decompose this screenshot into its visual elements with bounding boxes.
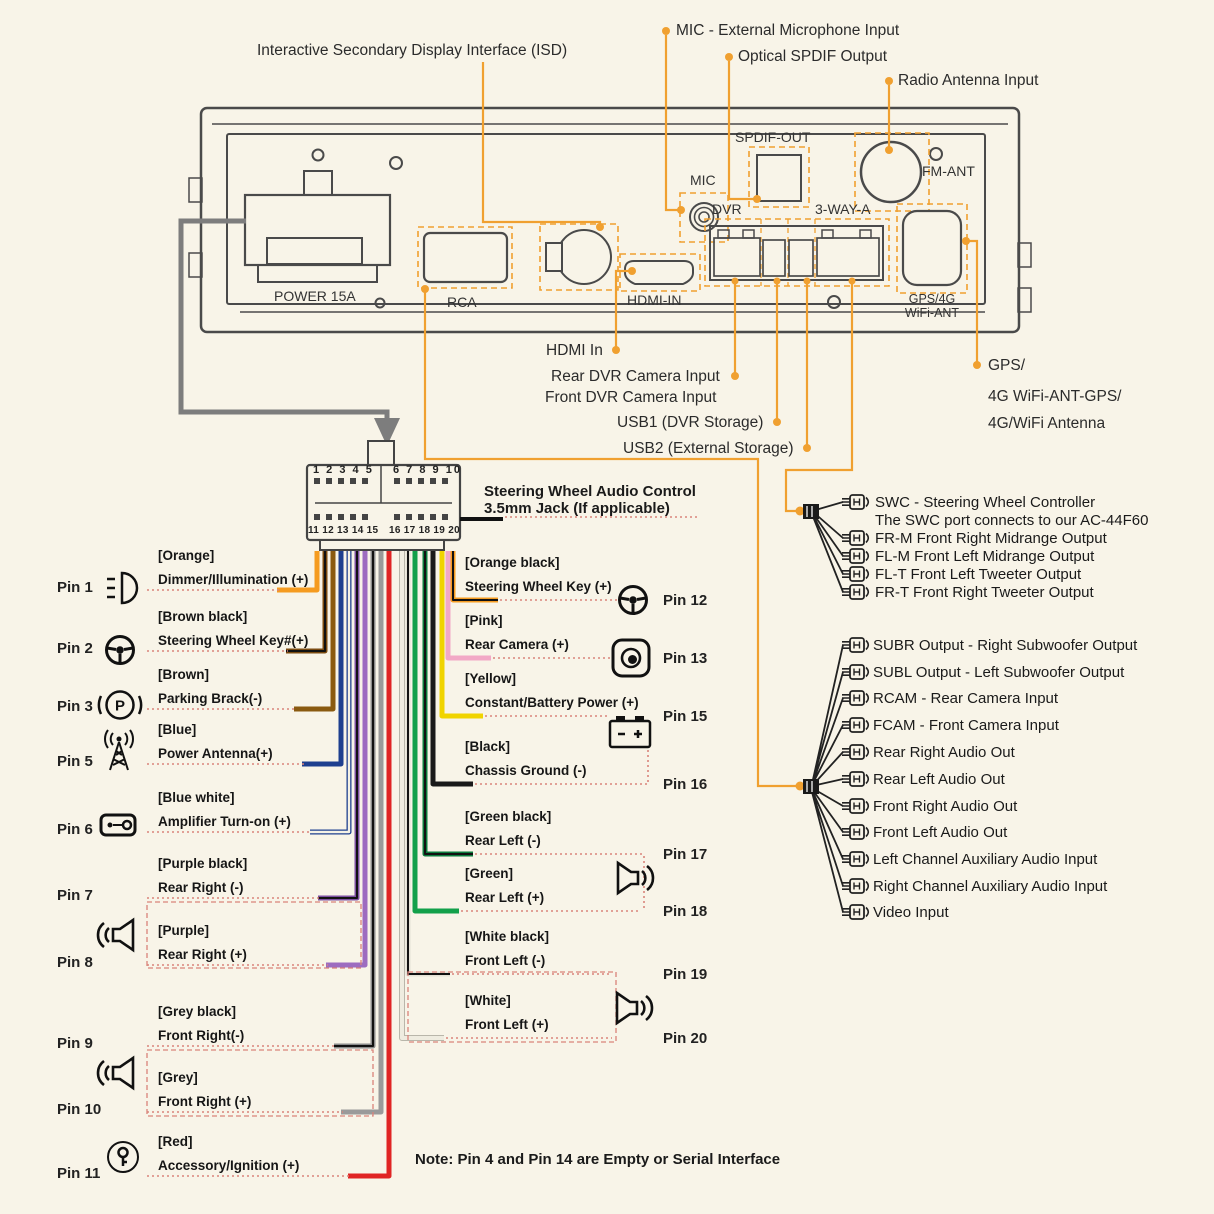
wire-color-label: [Blue white]: [158, 790, 235, 805]
wire-function-label: Parking Brack(-): [158, 691, 262, 706]
radio-callout-label: Radio Antenna Input: [898, 72, 1038, 90]
spdif-callout-label: Optical SPDIF Output: [738, 48, 887, 66]
wire-green: [415, 551, 459, 911]
wire-color-label: [Brown black]: [158, 609, 247, 624]
rca-line: RCAM - Rear Camera Input: [873, 690, 1058, 707]
wire-function-label: Rear Right (+): [158, 947, 247, 962]
wire-color-label: [Purple]: [158, 923, 209, 938]
mic-port-label: MIC: [690, 172, 716, 188]
swc-title-line1: Steering Wheel Audio Control: [484, 483, 696, 500]
rca-line: Rear Right Audio Out: [873, 744, 1015, 761]
wire-color-label: [Brown]: [158, 667, 209, 682]
mic-callout-label: MIC - External Microphone Input: [676, 22, 899, 40]
wire-color-label: [Green black]: [465, 809, 551, 824]
pin-label: Pin 10: [57, 1101, 101, 1118]
gps-label-line1: GPS/: [988, 357, 1025, 375]
battery-icon: [610, 716, 650, 747]
svg-text:P: P: [115, 698, 125, 715]
parking-brake-icon: P: [99, 692, 141, 719]
isd-callout-label: Interactive Secondary Display Interface …: [257, 42, 567, 60]
pin-label: Pin 19: [663, 966, 707, 983]
wire-color-label: [Orange]: [158, 548, 214, 563]
gps-port-label-line1: GPS/4G: [899, 292, 965, 306]
wire-function-label: Amplifier Turn-on (+): [158, 814, 291, 829]
wire-color-label: [Pink]: [465, 613, 503, 628]
wire-function-label: Steering Wheel Key (+): [465, 579, 612, 594]
wire-function-label: Chassis Ground (-): [465, 763, 587, 778]
rca-line: Video Input: [873, 904, 949, 921]
gps-connector-icon: [897, 204, 967, 293]
wire-color-label: [Blue]: [158, 722, 196, 737]
isd-connector-icon: [540, 224, 618, 290]
pin-label: Pin 17: [663, 846, 707, 863]
amplifier-icon: [101, 815, 135, 835]
gps-port-label-line2: WiFi-ANT: [899, 306, 965, 320]
steering-wheel-icon: [620, 587, 647, 614]
pin-label: Pin 2: [57, 640, 93, 657]
pin-label: Pin 20: [663, 1030, 707, 1047]
speaker-icon: [617, 993, 652, 1023]
fm-antenna-connector-icon: [855, 133, 929, 211]
swc-line: FL-T Front Left Tweeter Output: [875, 566, 1081, 583]
pin-label: Pin 1: [57, 579, 93, 596]
wire-function-label: Constant/Battery Power (+): [465, 695, 639, 710]
wire-function-label: Front Left (-): [465, 953, 545, 968]
hdmi-port-label: HDMI-IN: [627, 292, 681, 308]
wire-color-label: [Red]: [158, 1134, 193, 1149]
pin-label: Pin 6: [57, 821, 93, 838]
wire-color-label: [Black]: [465, 739, 510, 754]
swc-title-line2: 3.5mm Jack (If applicable): [484, 500, 670, 517]
ignition-key-icon: [108, 1142, 138, 1172]
pin-label: Pin 13: [663, 650, 707, 667]
wire-function-label: Dimmer/Illumination (+): [158, 572, 308, 587]
usb2-label: USB2 (External Storage): [623, 440, 794, 458]
rear-dvr-label: Rear DVR Camera Input: [551, 368, 720, 386]
pin-numbers-16-20: 16 17 18 19 20: [389, 525, 460, 536]
speaker-icon: [98, 920, 133, 950]
note-text: Note: Pin 4 and Pin 14 are Empty or Seri…: [415, 1151, 780, 1168]
wire-color-label: [White black]: [465, 929, 549, 944]
usb1-label: USB1 (DVR Storage): [617, 414, 763, 432]
wire-color-label: [Purple black]: [158, 856, 247, 871]
spdif-port-label: SPDIF-OUT: [735, 129, 810, 145]
wire-function-label: Rear Camera (+): [465, 637, 569, 652]
dvr-3way-connector-icon: [705, 219, 889, 286]
harness-feed-arrow: [181, 221, 400, 446]
screw-hole-icon: [930, 148, 942, 160]
pin-label: Pin 11: [57, 1165, 100, 1182]
power-port-label: POWER 15A: [274, 288, 356, 304]
gps-label-line2: 4G WiFi-ANT-GPS/: [988, 388, 1121, 406]
speaker-icon: [98, 1058, 133, 1088]
screw-hole-icon: [390, 157, 402, 169]
wire-function-label: Accessory/Ignition (+): [158, 1158, 299, 1173]
wire-color-label: [Green]: [465, 866, 513, 881]
wire-function-label: Steering Wheel Key#(+): [158, 633, 308, 648]
wire-function-label: Rear Left (-): [465, 833, 541, 848]
swc-line: SWC - Steering Wheel Controller: [875, 494, 1095, 511]
front-dvr-label: Front DVR Camera Input: [545, 389, 716, 407]
wire-color-label: [Orange black]: [465, 555, 560, 570]
pin-label: Pin 7: [57, 887, 93, 904]
wire-color-label: [White]: [465, 993, 511, 1008]
wire-function-label: Front Right (+): [158, 1094, 251, 1109]
dimmer-illumination-icon: [107, 573, 137, 603]
rca-line: Rear Left Audio Out: [873, 771, 1005, 788]
pin-label: Pin 8: [57, 954, 93, 971]
hdmi-in-label: HDMI In: [546, 342, 603, 360]
wire-function-label: Rear Right (-): [158, 880, 244, 895]
swc-line: The SWC port connects to our AC-44F60: [875, 512, 1148, 529]
swc-line: FL-M Front Left Midrange Output: [875, 548, 1094, 565]
camera-icon: [613, 640, 649, 676]
pin-label: Pin 18: [663, 903, 707, 920]
wire-color-label: [Yellow]: [465, 671, 516, 686]
steering-wheel-icon: [107, 637, 134, 664]
speaker-icon: [618, 863, 653, 893]
fanout-hub-icon: [803, 504, 819, 794]
rca-line: Right Channel Auxiliary Audio Input: [873, 878, 1107, 895]
antenna-icon: [105, 730, 133, 770]
pin-label: Pin 9: [57, 1035, 93, 1052]
wire-function-label: Power Antenna(+): [158, 746, 273, 761]
wire-color-label: [Grey black]: [158, 1004, 236, 1019]
swc-line: FR-T Front Right Tweeter Output: [875, 584, 1094, 601]
pin-numbers-6-10: 6 7 8 9 10: [393, 464, 462, 476]
3way-port-label: 3-WAY-A: [815, 201, 871, 217]
pin-label: Pin 16: [663, 776, 707, 793]
pin-numbers-1-5: 1 2 3 4 5: [313, 464, 374, 476]
wire-function-label: Front Left (+): [465, 1017, 549, 1032]
pin-label: Pin 12: [663, 592, 707, 609]
wiring-diagram: P Interactive Secondary Display Interfac…: [0, 0, 1214, 1214]
dvr-port-label: DVR: [712, 201, 742, 217]
rca-line: FCAM - Front Camera Input: [873, 717, 1059, 734]
rca-line: Left Channel Auxiliary Audio Input: [873, 851, 1097, 868]
rca-line: Front Left Audio Out: [873, 824, 1007, 841]
rca-line: SUBR Output - Right Subwoofer Output: [873, 637, 1137, 654]
fm-port-label: FM-ANT: [922, 163, 975, 179]
pin-numbers-11-15: 11 12 13 14 15: [308, 525, 378, 536]
rca-line: SUBL Output - Left Subwoofer Output: [873, 664, 1124, 681]
screw-hole-icon: [828, 296, 840, 308]
rca-plug-icons: [842, 495, 868, 919]
wire-function-label: Front Right(-): [158, 1028, 244, 1043]
pin-label: Pin 15: [663, 708, 707, 725]
power-connector-icon: [245, 150, 390, 283]
rca-line: Front Right Audio Out: [873, 798, 1017, 815]
rca-fanout-lines: [812, 502, 843, 912]
pin-label: Pin 3: [57, 698, 93, 715]
pin-label: Pin 5: [57, 753, 93, 770]
rca-connector-icon: [418, 227, 512, 288]
swc-line: FR-M Front Right Midrange Output: [875, 530, 1107, 547]
rca-port-label: RCA: [447, 294, 477, 310]
gps-label-line3: 4G/WiFi Antenna: [988, 415, 1105, 433]
wire-function-label: Rear Left (+): [465, 890, 544, 905]
wire-color-label: [Grey]: [158, 1070, 198, 1085]
